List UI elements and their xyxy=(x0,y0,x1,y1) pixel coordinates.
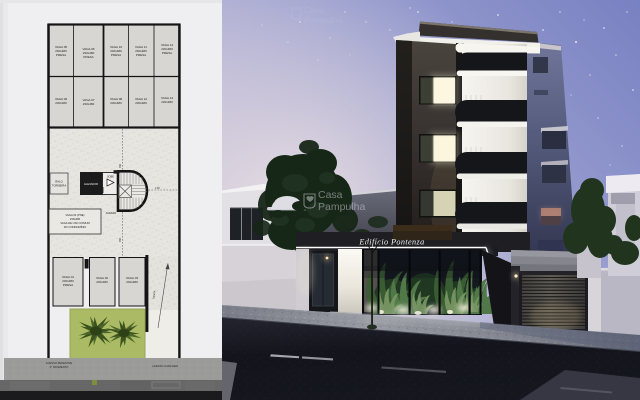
svg-text:ELEVADOR: ELEVADOR xyxy=(84,182,98,186)
svg-text:ACESSO: ACESSO xyxy=(106,212,116,215)
svg-text:PRESA: PRESA xyxy=(83,55,93,59)
svg-text:Casa: Casa xyxy=(304,5,324,15)
svg-text:PRESA: PRESA xyxy=(162,51,172,55)
svg-text:ACESSO GARAGEM: ACESSO GARAGEM xyxy=(152,364,178,368)
svg-text:230x480: 230x480 xyxy=(110,101,122,105)
svg-text:230x480: 230x480 xyxy=(55,101,67,105)
svg-text:TORNEIRA: TORNEIRA xyxy=(52,184,67,188)
svg-text:VAGA 04 (PNE): VAGA 04 (PNE) xyxy=(66,213,85,217)
svg-text:2° PAVIMENTO: 2° PAVIMENTO xyxy=(50,365,69,369)
svg-text:DO CONDOMÍNIO: DO CONDOMÍNIO xyxy=(64,225,87,229)
svg-text:350: 350 xyxy=(119,237,122,242)
svg-text:Pampulha: Pampulha xyxy=(304,15,343,25)
svg-text:230x480: 230x480 xyxy=(96,280,108,284)
svg-text:230x480: 230x480 xyxy=(126,280,138,284)
svg-text:Pampulha: Pampulha xyxy=(318,201,365,213)
svg-text:350: 350 xyxy=(119,163,122,168)
svg-text:PRESA: PRESA xyxy=(111,53,121,57)
svg-text:Casa: Casa xyxy=(318,189,343,201)
svg-text:SOBE: SOBE xyxy=(107,176,114,179)
svg-text:230x480: 230x480 xyxy=(161,100,173,104)
svg-text:230x480: 230x480 xyxy=(70,217,81,221)
svg-text:230x480: 230x480 xyxy=(83,102,95,106)
svg-text:2,90: 2,90 xyxy=(155,187,160,190)
svg-text:PRESA: PRESA xyxy=(56,53,66,57)
svg-text:230x480: 230x480 xyxy=(135,101,147,105)
svg-text:ACESSO PEDESTRE: ACESSO PEDESTRE xyxy=(46,361,73,365)
svg-text:VAGA DE USO COMUM: VAGA DE USO COMUM xyxy=(60,221,90,225)
svg-text:PRESA: PRESA xyxy=(136,53,146,57)
svg-text:PRESA: PRESA xyxy=(63,283,73,287)
